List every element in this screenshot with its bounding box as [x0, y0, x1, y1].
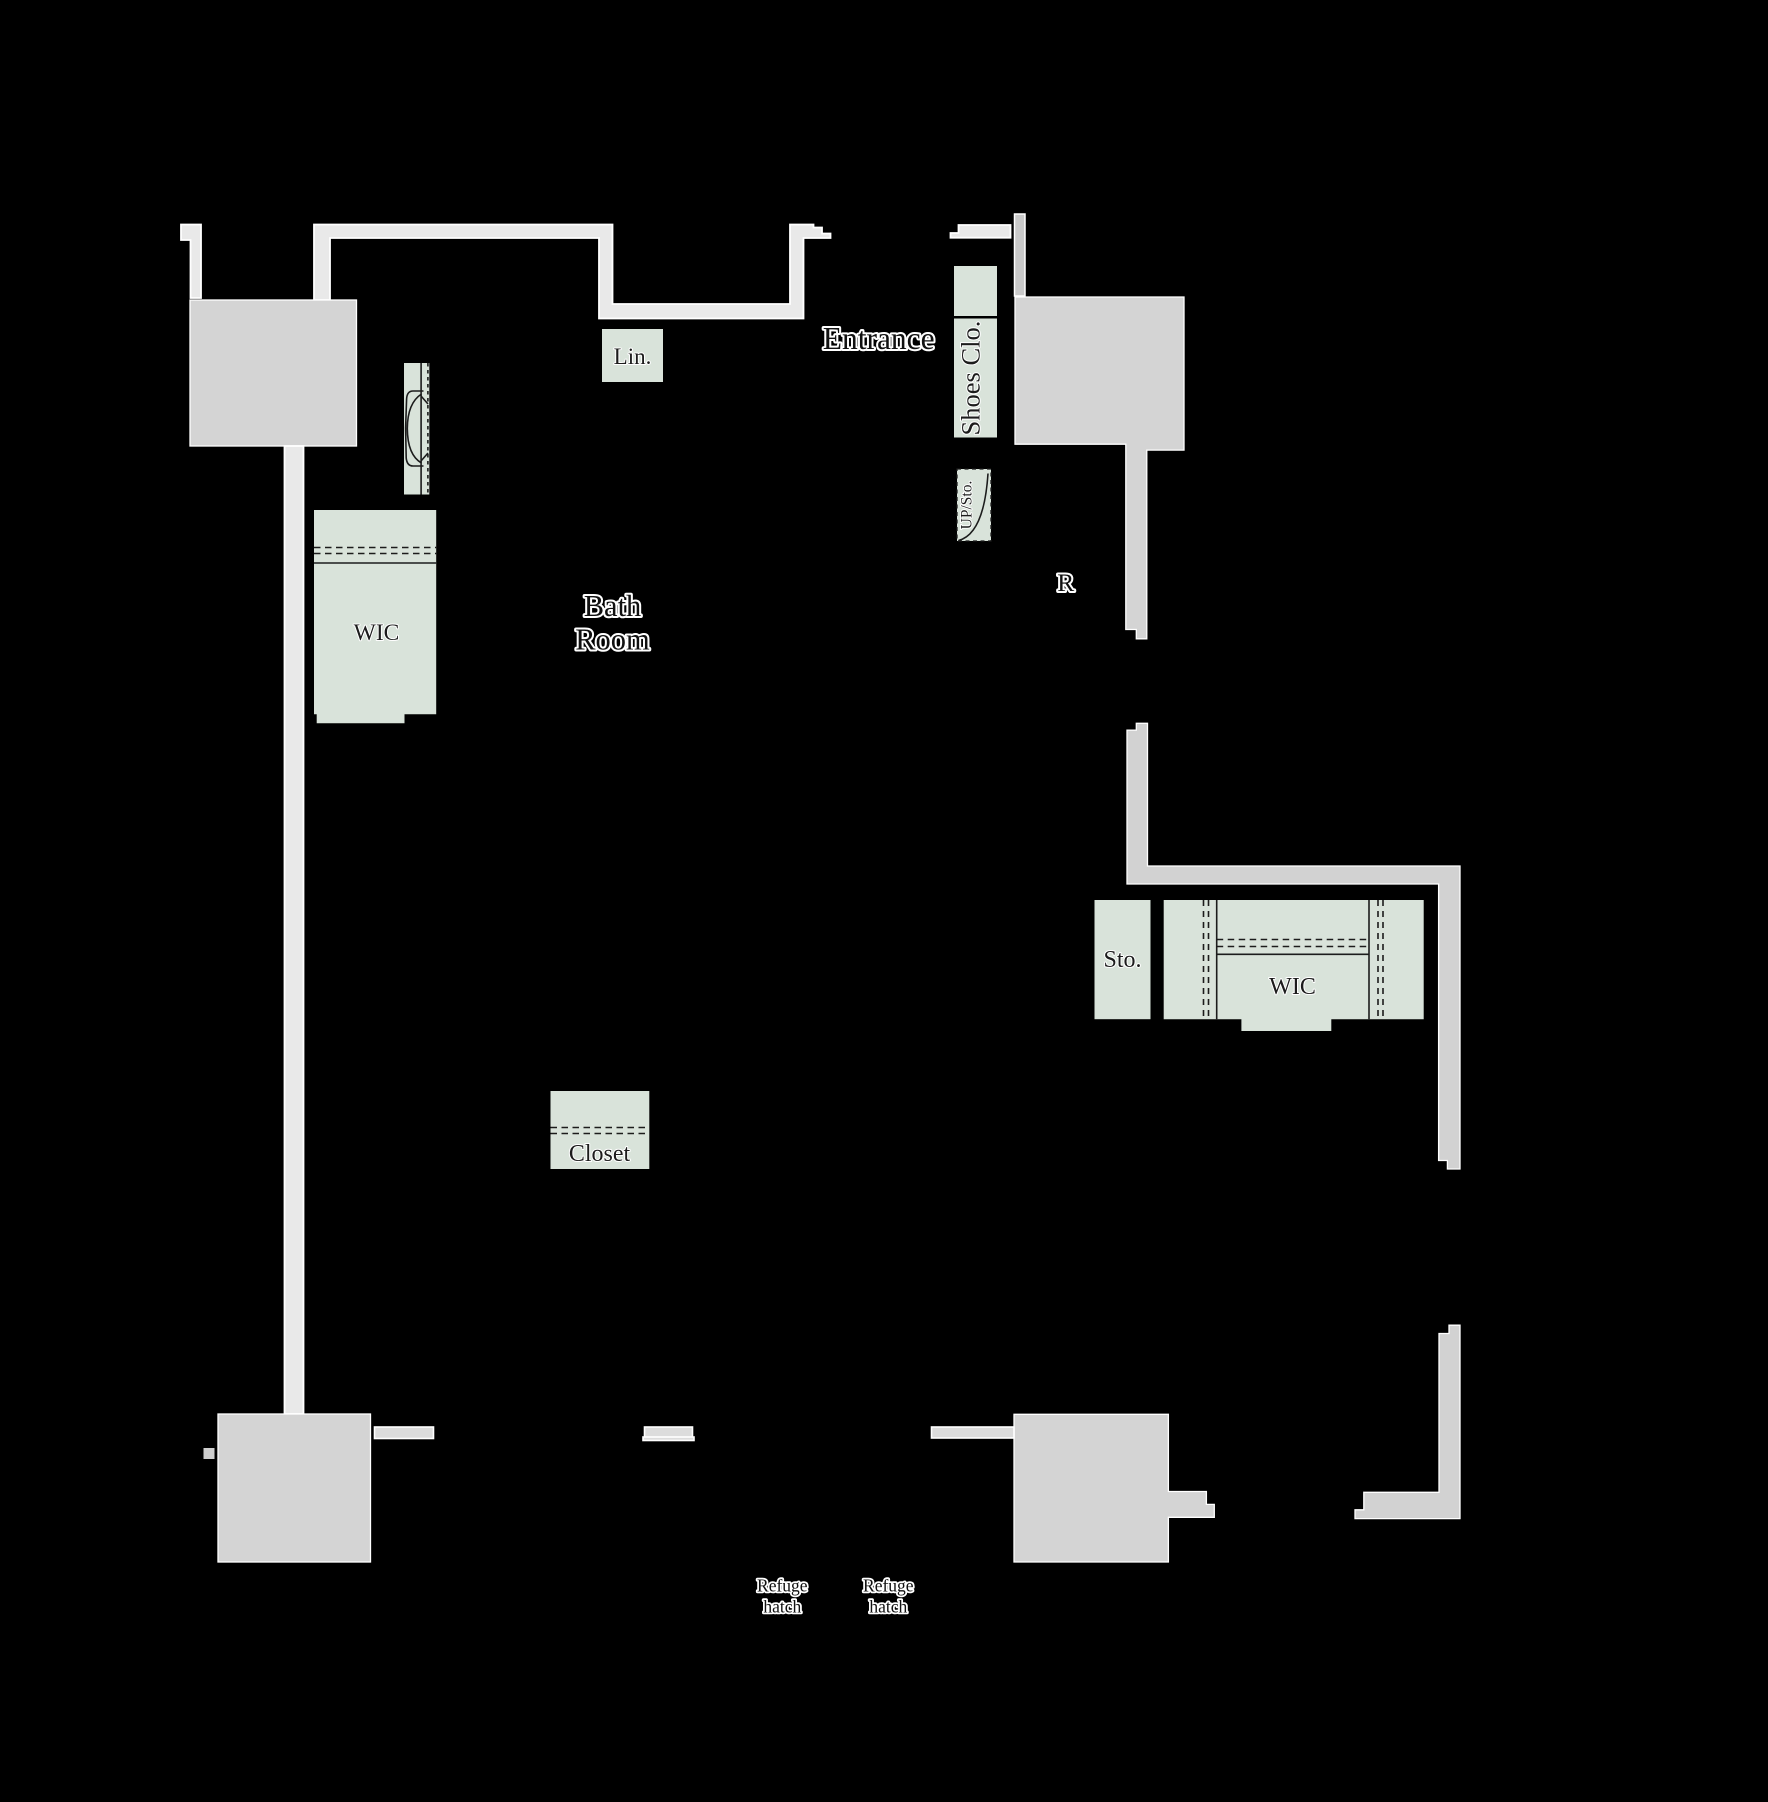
- svg-text:WIC: WIC: [1269, 974, 1316, 1000]
- svg-text:WIC: WIC: [354, 620, 400, 646]
- svg-text:R: R: [1057, 568, 1074, 597]
- svg-text:UP/Sto.: UP/Sto.: [959, 481, 976, 530]
- svg-text:Bath: Bath: [584, 589, 642, 623]
- svg-text:Lin.: Lin.: [614, 344, 652, 369]
- svg-text:Refuge: Refuge: [863, 1576, 914, 1596]
- svg-text:Shoes Clo.: Shoes Clo.: [956, 321, 986, 436]
- svg-text:Refuge: Refuge: [757, 1576, 808, 1596]
- svg-text:hatch: hatch: [869, 1597, 907, 1617]
- svg-text:Room: Room: [575, 623, 650, 657]
- svg-text:Sto.: Sto.: [1103, 947, 1141, 973]
- svg-text:Entrance: Entrance: [823, 321, 935, 356]
- svg-text:hatch: hatch: [763, 1597, 801, 1617]
- svg-text:Closet: Closet: [569, 1141, 631, 1167]
